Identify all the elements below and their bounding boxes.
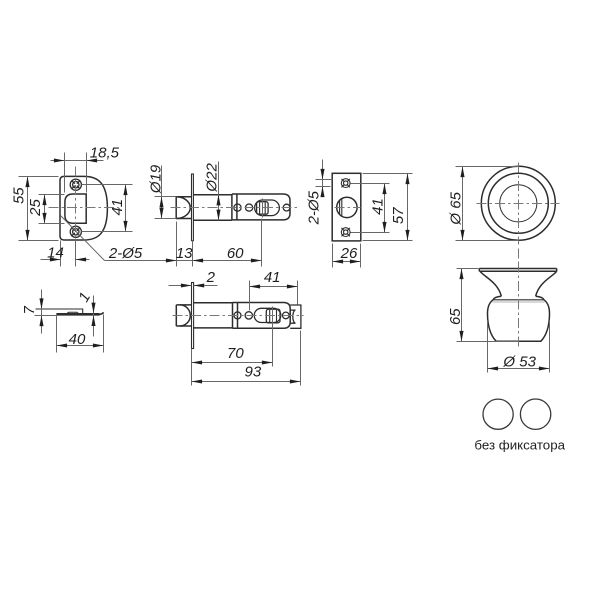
svg-text:7: 7 (21, 305, 38, 314)
svg-text:65: 65 (447, 308, 464, 325)
svg-text:26: 26 (340, 245, 358, 262)
svg-text:2: 2 (206, 269, 216, 286)
svg-text:Ø 65: Ø 65 (448, 191, 465, 225)
svg-text:1: 1 (75, 289, 94, 305)
svg-text:18,5: 18,5 (90, 145, 120, 162)
svg-text:40: 40 (69, 331, 86, 348)
svg-text:Ø19: Ø19 (147, 164, 164, 194)
svg-text:93: 93 (245, 364, 262, 381)
svg-text:60: 60 (227, 245, 244, 262)
svg-text:Ø22: Ø22 (203, 163, 220, 193)
svg-text:2-Ø5: 2-Ø5 (108, 245, 143, 262)
svg-text:70: 70 (227, 345, 244, 362)
svg-text:14: 14 (47, 245, 64, 262)
svg-text:41: 41 (369, 198, 386, 215)
svg-text:13: 13 (176, 245, 193, 262)
svg-text:55: 55 (10, 187, 27, 204)
svg-text:41: 41 (109, 199, 126, 216)
svg-text:без фиксатора: без фиксатора (474, 437, 565, 452)
svg-text:57: 57 (390, 207, 407, 224)
svg-text:2-Ø5: 2-Ø5 (305, 190, 322, 225)
svg-text:Ø 53: Ø 53 (502, 354, 536, 371)
svg-text:41: 41 (264, 269, 281, 286)
svg-text:25: 25 (27, 199, 44, 217)
